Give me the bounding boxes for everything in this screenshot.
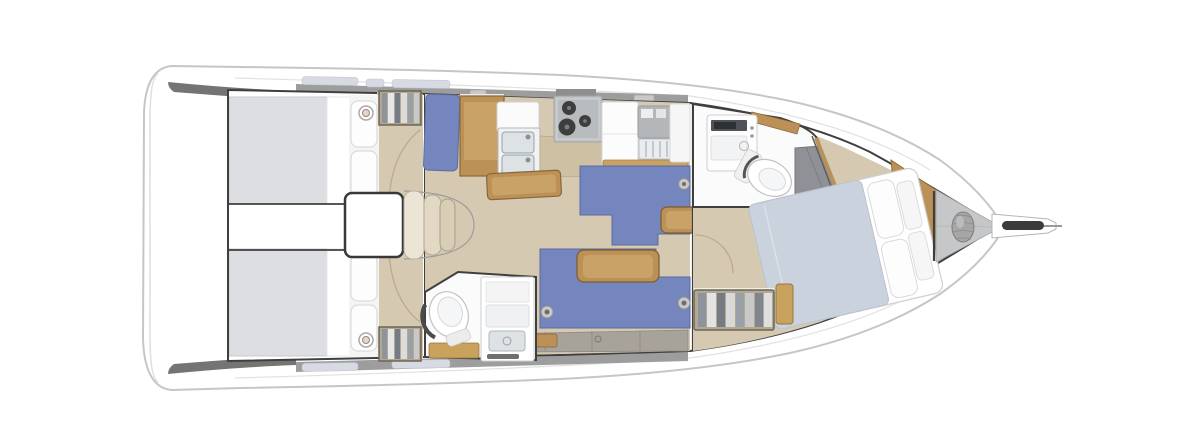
burner-cap <box>583 119 587 123</box>
floorplan-canvas <box>0 0 1200 448</box>
porthole-inner <box>363 337 370 344</box>
galley-locker-tall <box>602 102 638 168</box>
windlass-highlight <box>956 216 964 228</box>
engine-box <box>345 193 403 257</box>
faucet-icon <box>526 158 531 163</box>
aft-berth-sheet <box>327 249 351 356</box>
faucet-icon <box>526 135 531 140</box>
burner-cap <box>565 125 570 130</box>
vanity-counter <box>711 136 747 160</box>
head-vent <box>487 354 519 359</box>
coachroof-window <box>366 79 384 87</box>
step <box>424 195 441 255</box>
settee-port-center <box>545 310 550 315</box>
pillow <box>351 255 377 301</box>
step <box>440 199 455 251</box>
aft-cabin-port <box>229 91 423 205</box>
knob <box>750 134 754 138</box>
vanity-counter <box>486 282 529 302</box>
cabin-bench <box>776 284 793 324</box>
coachroof-window <box>392 79 450 88</box>
chart-table-top <box>464 102 500 160</box>
aft-berth-duvet <box>229 249 329 356</box>
galley-fiddle-shelf <box>486 170 561 200</box>
aft-cabin-starboard <box>229 247 423 361</box>
coachroof-window <box>302 363 358 372</box>
fridge-lid <box>641 109 653 118</box>
hanging-clothes <box>698 293 772 327</box>
coachroof-window <box>302 77 358 86</box>
aft-berth-duvet <box>229 97 329 204</box>
porthole-inner <box>363 110 370 117</box>
boat-floorplan <box>0 0 1200 448</box>
fridge-lid <box>656 109 666 118</box>
anchor-roller <box>1002 221 1044 230</box>
saloon-table-top <box>583 255 653 278</box>
burner-cap <box>567 106 571 110</box>
galley-end-locker <box>670 104 690 162</box>
knob <box>750 126 754 130</box>
vanity-cabinet <box>486 305 529 327</box>
pillow <box>351 151 377 197</box>
vanity-hatch-glass <box>714 122 736 129</box>
settee-port-center <box>682 301 687 306</box>
settee-port-center <box>682 182 686 186</box>
nav-station-seat <box>423 94 460 171</box>
aft-berth-sheet <box>327 97 351 204</box>
windlass <box>952 212 974 242</box>
saloon <box>416 89 717 361</box>
head-sink <box>489 331 525 351</box>
step <box>404 191 424 259</box>
